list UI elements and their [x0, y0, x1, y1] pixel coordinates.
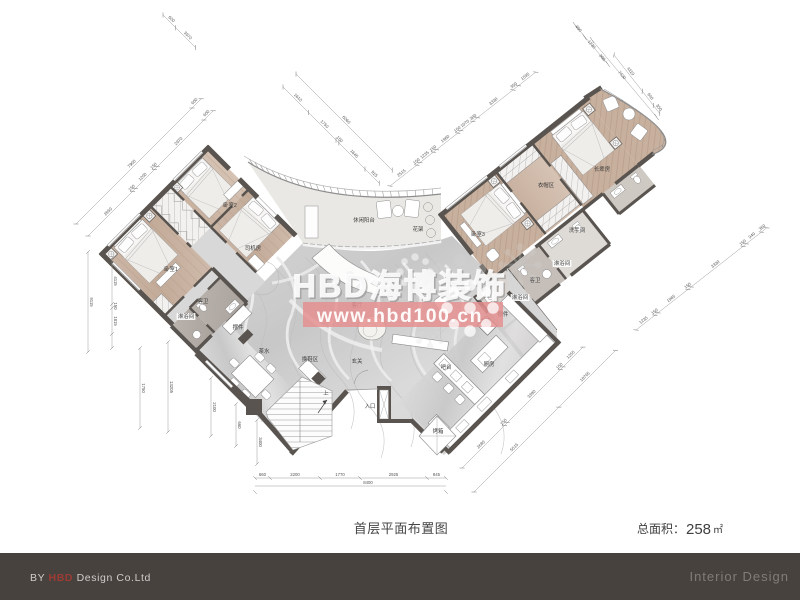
svg-text:花架: 花架	[413, 225, 424, 233]
svg-text:玄关: 玄关	[352, 357, 363, 365]
svg-text:1770: 1770	[335, 472, 345, 477]
svg-text:衣帽区: 衣帽区	[538, 181, 555, 189]
svg-text:Interior Design: Interior Design	[689, 569, 789, 584]
svg-text:休闲阳台: 休闲阳台	[353, 216, 375, 224]
svg-text:2925: 2925	[389, 472, 399, 477]
svg-text:客卫: 客卫	[198, 297, 209, 305]
svg-text:茶水: 茶水	[259, 347, 270, 355]
svg-text:司机房: 司机房	[245, 244, 261, 252]
svg-text:长辈房: 长辈房	[594, 165, 610, 173]
svg-text:4115: 4115	[113, 276, 118, 286]
svg-text:烤箱: 烤箱	[433, 427, 444, 435]
svg-text:入口: 入口	[365, 403, 376, 410]
svg-text:845: 845	[433, 472, 441, 477]
svg-text:258: 258	[686, 521, 711, 538]
svg-text:660: 660	[237, 421, 242, 429]
svg-text:2200: 2200	[290, 472, 300, 477]
svg-text:660: 660	[259, 472, 267, 477]
svg-text:吧台: 吧台	[441, 363, 452, 371]
svg-text:1815: 1815	[113, 316, 118, 326]
svg-text:BY HBD Design Co.Ltd: BY HBD Design Co.Ltd	[30, 572, 151, 584]
svg-text:厨房: 厨房	[484, 360, 495, 368]
svg-text:8400: 8400	[363, 480, 373, 485]
svg-text:㎡: ㎡	[713, 524, 723, 536]
svg-text:上: 上	[323, 389, 329, 397]
svg-text:9115: 9115	[89, 297, 94, 307]
svg-text:总面积：: 总面积：	[637, 522, 685, 536]
svg-text:150: 150	[113, 302, 118, 310]
svg-text:卧室3: 卧室3	[471, 230, 485, 238]
svg-text:卧室1: 卧室1	[164, 265, 178, 273]
svg-text:淋浴间: 淋浴间	[178, 312, 194, 320]
svg-text:淋浴间: 淋浴间	[512, 293, 528, 301]
svg-text:1750: 1750	[141, 383, 146, 393]
svg-text:2100: 2100	[212, 402, 217, 412]
svg-text:洗手间: 洗手间	[569, 226, 585, 234]
svg-text:13205: 13205	[169, 381, 174, 394]
svg-text:淋浴间: 淋浴间	[554, 259, 570, 267]
svg-text:换鞋区: 换鞋区	[302, 355, 319, 363]
svg-text:卧室2: 卧室2	[223, 201, 237, 209]
svg-text:3400: 3400	[258, 437, 263, 447]
svg-text:首层平面布置图: 首层平面布置图	[354, 521, 449, 536]
svg-text:摆件: 摆件	[233, 323, 244, 331]
